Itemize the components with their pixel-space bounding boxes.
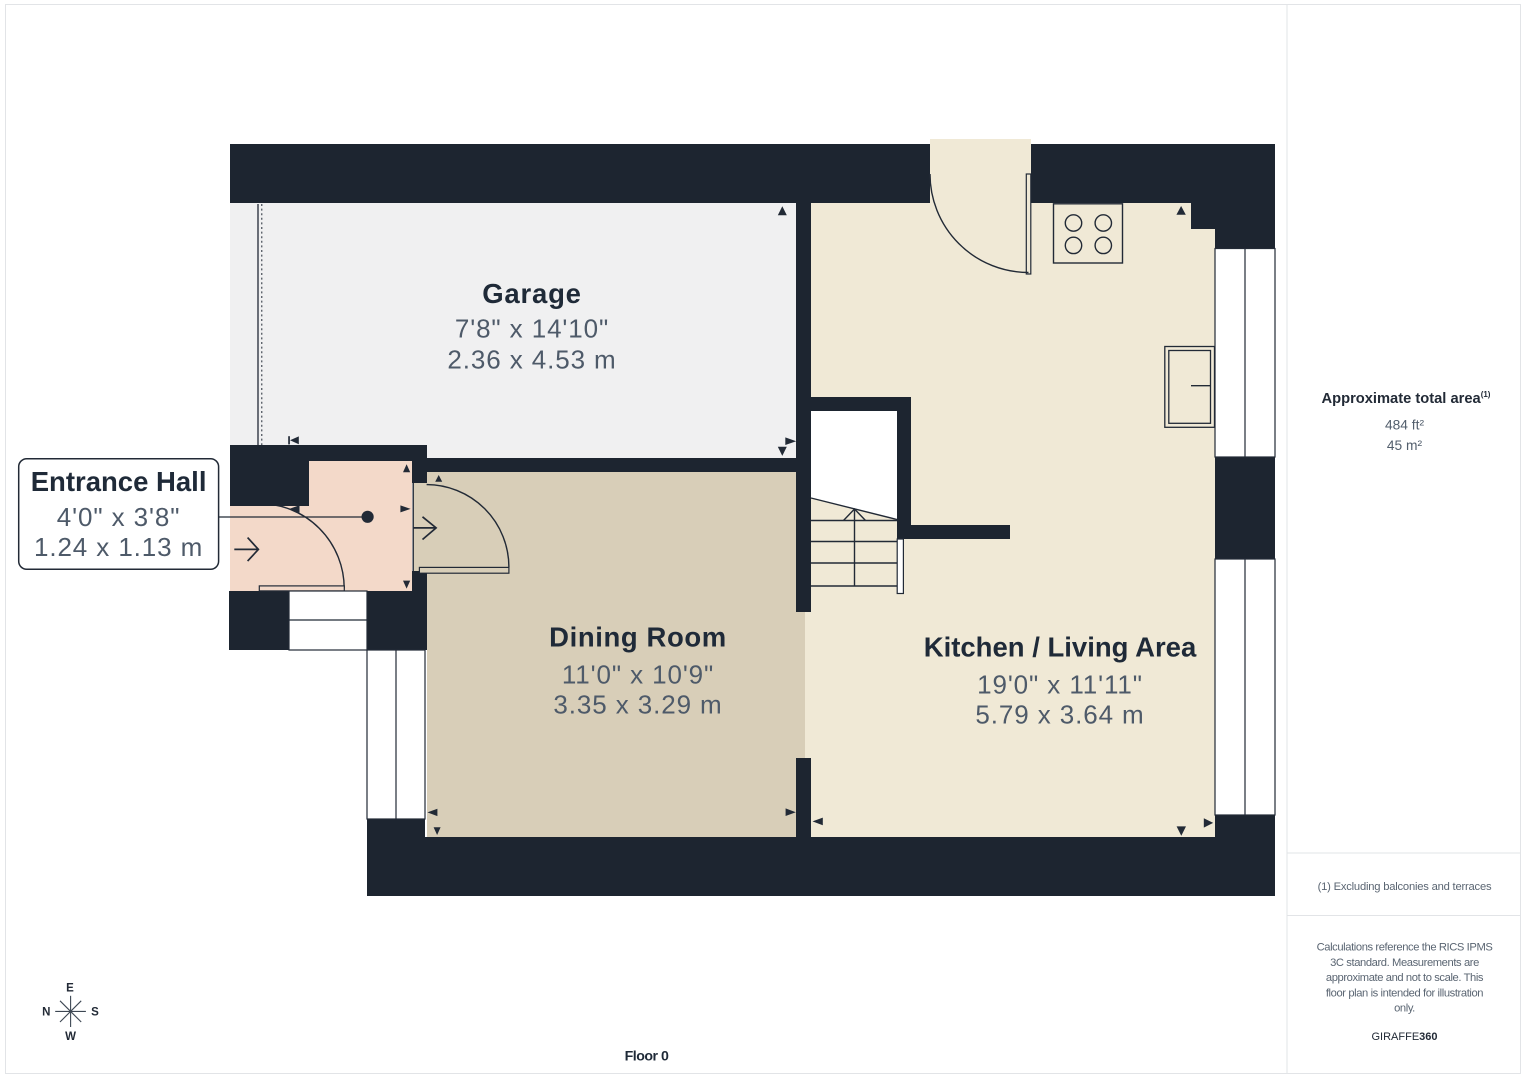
svg-text:45 m²: 45 m² xyxy=(1387,438,1423,453)
svg-text:GIRAFFE360: GIRAFFE360 xyxy=(1371,1031,1437,1043)
svg-text:5.79 x 3.64 m: 5.79 x 3.64 m xyxy=(975,700,1144,730)
svg-text:Calculations reference the RIC: Calculations reference the RICS IPMS xyxy=(1317,942,1493,954)
svg-text:1.24 x 1.13 m: 1.24 x 1.13 m xyxy=(34,532,203,562)
svg-text:approximate and not to scale.: approximate and not to scale. This xyxy=(1326,972,1484,984)
svg-text:3.35 x 3.29 m: 3.35 x 3.29 m xyxy=(553,690,722,720)
svg-text:W: W xyxy=(65,1031,76,1043)
svg-text:(1) Excluding balconies and te: (1) Excluding balconies and terraces xyxy=(1318,881,1492,893)
svg-text:Dining Room: Dining Room xyxy=(549,622,727,653)
svg-text:Entrance Hall: Entrance Hall xyxy=(31,466,207,497)
svg-text:S: S xyxy=(91,1006,99,1018)
svg-text:3C standard. Measurements are: 3C standard. Measurements are xyxy=(1330,957,1479,969)
svg-text:floor plan is intended for ill: floor plan is intended for illustration xyxy=(1326,988,1483,1000)
svg-text:E: E xyxy=(66,983,74,995)
svg-text:4'0" x 3'8": 4'0" x 3'8" xyxy=(57,502,181,532)
svg-text:11'0" x 10'9": 11'0" x 10'9" xyxy=(562,660,714,690)
svg-text:only.: only. xyxy=(1394,1003,1415,1015)
svg-text:7'8" x 14'10": 7'8" x 14'10" xyxy=(455,314,609,344)
svg-text:Garage: Garage xyxy=(482,278,582,309)
svg-text:2.36 x 4.53 m: 2.36 x 4.53 m xyxy=(447,345,616,375)
svg-text:484 ft²: 484 ft² xyxy=(1385,418,1425,433)
svg-text:Approximate total area(1): Approximate total area(1) xyxy=(1322,390,1491,407)
svg-text:Kitchen / Living Area: Kitchen / Living Area xyxy=(924,632,1197,663)
svg-text:19'0" x 11'11": 19'0" x 11'11" xyxy=(977,670,1143,700)
svg-text:N: N xyxy=(42,1006,50,1018)
svg-text:Floor 0: Floor 0 xyxy=(625,1049,669,1065)
